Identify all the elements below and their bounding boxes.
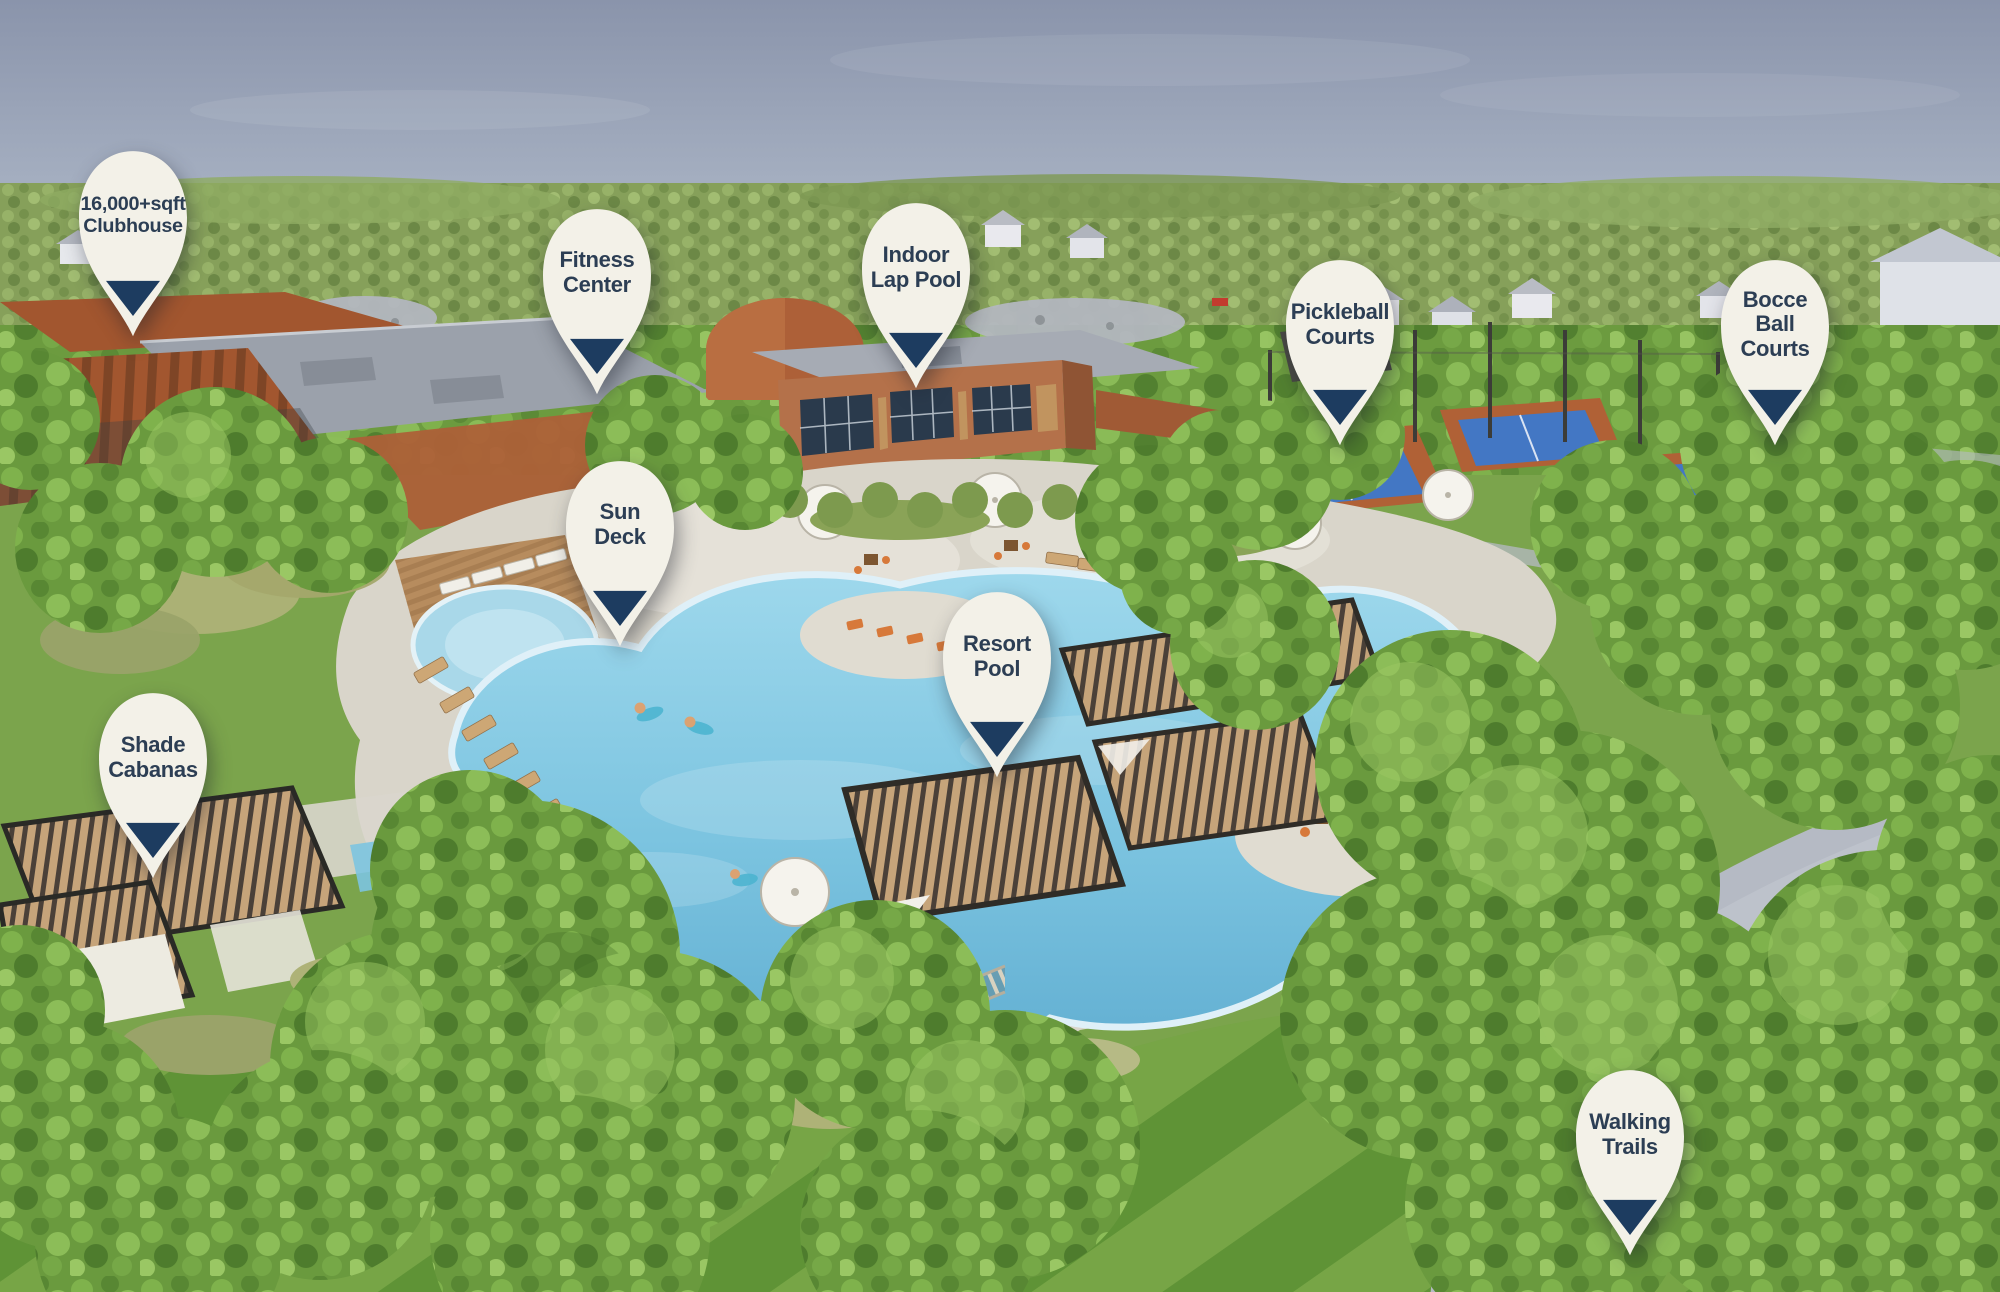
- pin-label: IndoorLap Pool: [854, 221, 978, 315]
- pin-label-line: Courts: [1305, 325, 1374, 350]
- pin-label-line: 16,000+sqft: [80, 193, 185, 215]
- pin-label-line: Lap Pool: [871, 268, 962, 293]
- map-pin-shade-cabanas[interactable]: ShadeCabanas: [86, 685, 221, 881]
- pin-label: ShadeCabanas: [91, 711, 215, 805]
- map-pin-pickleball-courts[interactable]: PickleballCourts: [1273, 252, 1408, 448]
- pin-label: WalkingTrails: [1568, 1088, 1692, 1182]
- map-pin-resort-pool[interactable]: ResortPool: [930, 584, 1065, 780]
- pin-label-line: Bocce: [1743, 288, 1808, 313]
- pin-label-line: Trails: [1602, 1135, 1658, 1160]
- pin-label: BocceBallCourts: [1713, 278, 1837, 372]
- distant-car: [1212, 298, 1228, 306]
- pin-label-line: Pickleball: [1291, 300, 1390, 325]
- pin-label-line: Courts: [1740, 337, 1809, 362]
- map-pin-bocce-ball-courts[interactable]: BocceBallCourts: [1708, 252, 1843, 448]
- pin-label-line: Deck: [594, 525, 645, 550]
- map-pin-indoor-lap-pool[interactable]: IndoorLap Pool: [849, 195, 984, 391]
- map-pin-sun-deck[interactable]: SunDeck: [553, 453, 688, 649]
- pin-label-line: Shade: [121, 733, 186, 758]
- pin-label-line: Center: [563, 273, 631, 298]
- pin-label-line: Clubhouse: [83, 215, 183, 237]
- map-pin-clubhouse[interactable]: 16,000+sqftClubhouse: [66, 143, 201, 339]
- pin-label-line: Ball: [1755, 312, 1794, 337]
- amenity-map: 16,000+sqftClubhouse FitnessCenter Indoo…: [0, 0, 2000, 1292]
- pin-label-line: Walking: [1589, 1110, 1670, 1135]
- pin-label-line: Fitness: [560, 248, 635, 273]
- pin-label: 16,000+sqftClubhouse: [71, 168, 195, 262]
- map-pin-walking-trails[interactable]: WalkingTrails: [1563, 1062, 1698, 1258]
- pin-label-line: Sun: [600, 500, 641, 525]
- pin-label: SunDeck: [558, 478, 682, 572]
- pin-label: ResortPool: [935, 610, 1059, 704]
- map-pin-fitness-center[interactable]: FitnessCenter: [530, 201, 665, 397]
- pin-label: FitnessCenter: [535, 226, 659, 320]
- pin-label-line: Cabanas: [108, 758, 198, 783]
- pin-label-line: Indoor: [883, 243, 950, 268]
- pin-label-line: Pool: [974, 657, 1020, 682]
- pin-label-line: Resort: [963, 632, 1031, 657]
- pin-label: PickleballCourts: [1278, 278, 1402, 372]
